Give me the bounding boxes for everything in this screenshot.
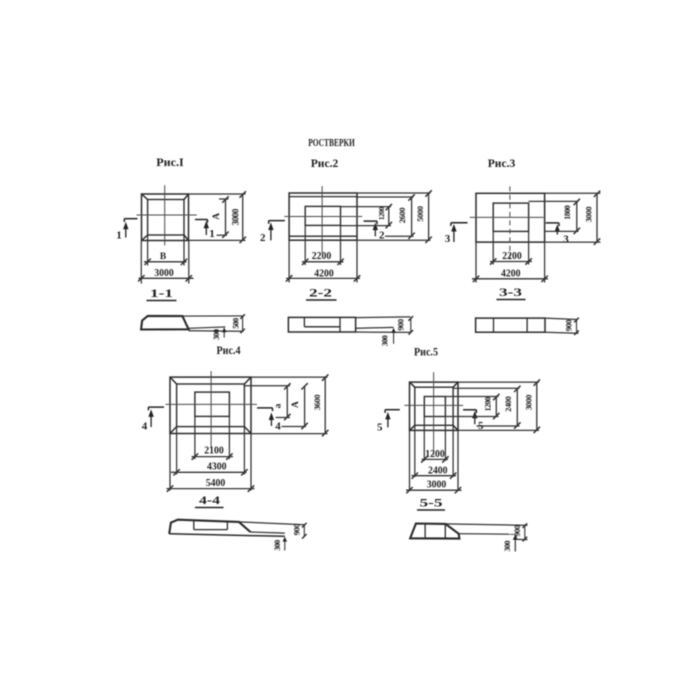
svg-text:5400: 5400	[206, 478, 226, 489]
svg-text:2200: 2200	[502, 251, 522, 262]
svg-text:1: 1	[116, 230, 122, 242]
svg-text:5000: 5000	[415, 206, 425, 222]
svg-text:3: 3	[445, 233, 451, 245]
svg-text:А: А	[291, 401, 301, 408]
svg-text:900: 900	[292, 524, 302, 536]
svg-text:4: 4	[142, 421, 148, 433]
svg-text:4-4: 4-4	[199, 495, 220, 507]
svg-text:Рис.2: Рис.2	[311, 156, 339, 170]
svg-text:3-3: 3-3	[499, 287, 522, 299]
svg-text:Рис.I: Рис.I	[156, 155, 184, 169]
svg-text:Рис.5: Рис.5	[414, 345, 438, 359]
svg-text:1200: 1200	[483, 397, 492, 412]
svg-text:3: 3	[563, 233, 569, 245]
svg-text:3000: 3000	[584, 207, 594, 223]
svg-text:4200: 4200	[314, 268, 334, 279]
svg-text:1200: 1200	[377, 207, 386, 221]
svg-text:3000: 3000	[427, 479, 447, 490]
svg-text:2400: 2400	[428, 465, 448, 476]
svg-text:4300: 4300	[207, 462, 227, 473]
svg-text:Рис.4: Рис.4	[217, 343, 241, 357]
svg-text:900: 900	[396, 319, 406, 331]
svg-text:900: 900	[564, 320, 574, 332]
svg-text:2400: 2400	[503, 396, 513, 412]
svg-text:РОСТВЕРКИ: РОСТВЕРКИ	[308, 138, 355, 149]
svg-text:5-5: 5-5	[420, 498, 443, 510]
svg-text:300: 300	[212, 329, 221, 340]
svg-text:2: 2	[260, 232, 266, 244]
svg-text:3000: 3000	[231, 208, 241, 225]
svg-text:4: 4	[275, 421, 281, 433]
svg-text:Рис.3: Рис.3	[488, 156, 516, 170]
svg-text:2200: 2200	[312, 251, 332, 262]
svg-text:300: 300	[380, 335, 389, 346]
svg-text:3600: 3600	[312, 395, 322, 411]
svg-text:1: 1	[209, 228, 215, 240]
svg-text:3000: 3000	[524, 395, 534, 411]
svg-text:2100: 2100	[204, 445, 224, 456]
svg-text:300: 300	[273, 540, 282, 551]
svg-text:1200: 1200	[425, 449, 445, 460]
svg-text:А: А	[212, 213, 222, 220]
svg-text:2-2: 2-2	[309, 288, 332, 300]
svg-text:5: 5	[377, 422, 383, 434]
svg-text:300: 300	[503, 541, 512, 552]
svg-text:500: 500	[231, 318, 240, 329]
svg-text:3000: 3000	[154, 268, 174, 279]
svg-text:900: 900	[512, 525, 522, 537]
svg-text:а: а	[273, 403, 283, 408]
svg-text:2600: 2600	[397, 208, 407, 224]
svg-text:1-1: 1-1	[150, 288, 173, 300]
svg-text:В: В	[160, 252, 167, 262]
svg-text:4200: 4200	[501, 268, 521, 279]
svg-text:1800: 1800	[563, 205, 572, 220]
